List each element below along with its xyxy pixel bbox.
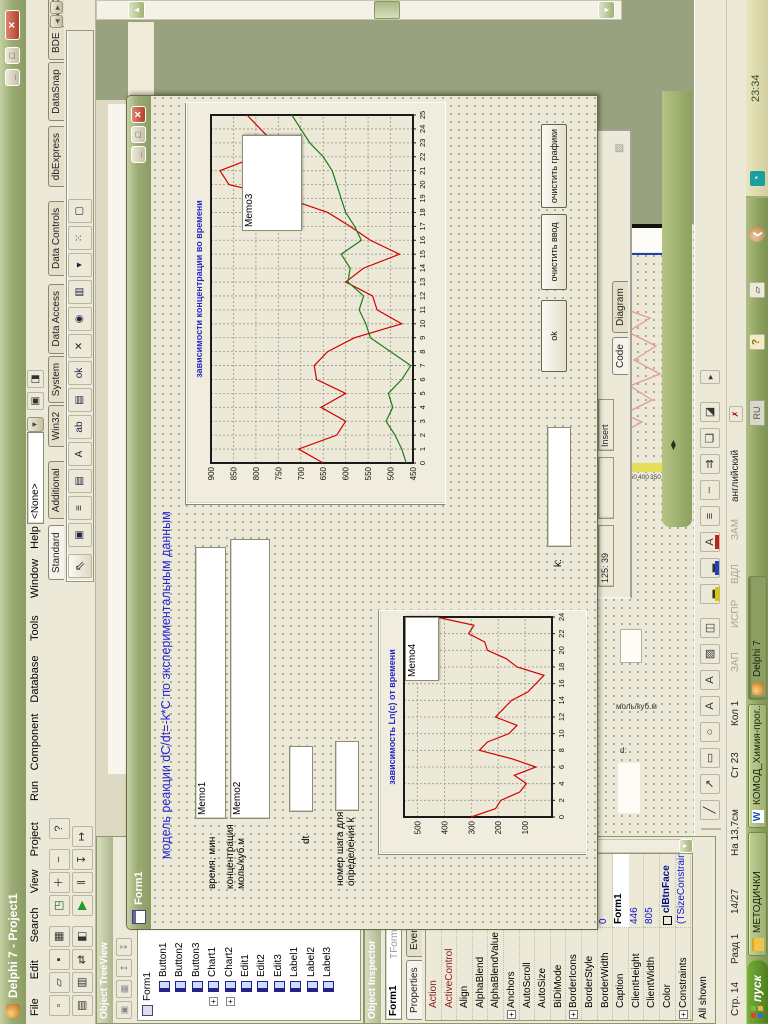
word-status-cell: Кол 1 xyxy=(730,701,741,726)
palette-tab-win32[interactable]: Win32 xyxy=(48,405,64,447)
word-status-cell: Ст 23 xyxy=(730,752,741,778)
svg-text:0: 0 xyxy=(557,815,566,819)
menu-view[interactable]: View xyxy=(29,870,41,894)
treeview-toolbar-icon[interactable]: ↧ xyxy=(116,938,132,956)
tree-item-icon xyxy=(225,981,236,992)
start-label: пуск xyxy=(746,975,768,1002)
svg-text:12: 12 xyxy=(557,713,566,721)
ok-button[interactable]: ok xyxy=(541,300,567,372)
svg-text:450: 450 xyxy=(409,466,418,480)
word-doc-white1 xyxy=(618,763,640,813)
svg-text:5: 5 xyxy=(418,391,427,395)
edit2[interactable] xyxy=(335,741,359,811)
word-status-cell: Стр. 14 xyxy=(730,982,741,1016)
word-scroll-up-icon[interactable]: ▲ xyxy=(128,1,145,19)
property-name: Caption xyxy=(615,974,626,1008)
palette-icon-strip: ⇖▣≡▤Aab▤ok✕◉▥▾⁙▢ xyxy=(66,30,94,582)
save-all-icon[interactable]: ▦ xyxy=(49,926,70,947)
property-name: AutoSize xyxy=(537,968,548,1008)
word-indicator: ВДЛ xyxy=(730,564,741,584)
groupbox-icon[interactable]: ▢ xyxy=(68,199,92,223)
property-name: Action xyxy=(428,980,439,1008)
combobox-icon[interactable]: ▾ xyxy=(68,253,92,277)
svg-text:3: 3 xyxy=(418,419,427,423)
word-scrollbar-track[interactable] xyxy=(96,0,622,20)
line-color-icon[interactable]: ▂ xyxy=(700,558,720,578)
svg-text:650: 650 xyxy=(319,466,328,480)
ide-close-icon[interactable]: ✕ xyxy=(5,10,20,40)
property-value: clBtnFace xyxy=(660,854,676,928)
property-value[interactable]: Form1 xyxy=(613,854,629,928)
editor-tab-diagram[interactable]: Diagram xyxy=(612,281,628,333)
spelling-status-icon: ✗ xyxy=(729,406,743,422)
property-row[interactable]: BorderWidth0 xyxy=(598,854,614,1020)
tray-app-icon: ◔ xyxy=(750,171,765,186)
svg-text:16: 16 xyxy=(557,679,566,687)
palette-tab-additional[interactable]: Additional xyxy=(48,461,64,519)
editor-line-col: 125: 39 xyxy=(598,525,614,587)
debug-desktop-icon[interactable]: ◨ xyxy=(27,370,44,388)
svg-text:4: 4 xyxy=(557,782,566,786)
tree-item-label1[interactable]: Label1 xyxy=(289,947,300,977)
word-doc-label-d: d: xyxy=(620,746,627,755)
taskbar-button-2[interactable]: КОМОД_Химия-прог...W xyxy=(748,704,767,828)
step-over-icon[interactable]: ↦ xyxy=(72,826,93,847)
label-icon[interactable]: A xyxy=(68,442,92,466)
menu-project[interactable]: Project xyxy=(29,822,41,856)
tree-item-label2[interactable]: Label2 xyxy=(306,947,317,977)
background-window-bar xyxy=(662,91,692,527)
word-scroll-thumb[interactable] xyxy=(374,1,400,19)
tree-expand-icon[interactable]: + xyxy=(209,997,218,1006)
editor-tab-code[interactable]: Code xyxy=(612,337,628,375)
scrollbar-icon[interactable]: ⁙ xyxy=(68,226,92,250)
property-name: ActiveControl xyxy=(444,949,455,1008)
system-tray: ◔23:34 xyxy=(746,0,768,198)
font-color-icon[interactable]: A xyxy=(700,532,720,552)
picture-icon[interactable]: ▨ xyxy=(700,644,720,664)
tree-item-icon xyxy=(307,981,318,992)
tree-item-button2[interactable]: Button2 xyxy=(174,943,185,977)
edit3[interactable] xyxy=(547,427,571,547)
tree-item-edit1[interactable]: Edit1 xyxy=(240,954,251,977)
form-minimize-icon[interactable]: _ xyxy=(131,146,146,163)
svg-text:14: 14 xyxy=(418,264,427,272)
svg-text:400: 400 xyxy=(440,820,449,834)
tree-item-button1[interactable]: Button1 xyxy=(158,943,169,977)
view-form-icon[interactable]: ▥ xyxy=(72,972,93,993)
property-name: ClientWidth xyxy=(646,957,657,1008)
word-indicator: ЗАП xyxy=(730,652,741,672)
rotated-screenshot: ▲▼d:моль/куб.м500450400350300◂▸╱↗▭○AА▨◫▂… xyxy=(0,0,768,1024)
line-icon[interactable]: ╱ xyxy=(700,800,720,820)
menu-edit[interactable]: Edit xyxy=(29,960,41,979)
tree-item-button3[interactable]: Button3 xyxy=(191,943,202,977)
taskbar-button-3[interactable]: Delphi 7 xyxy=(748,576,767,700)
popup-menu-icon[interactable]: ▤ xyxy=(68,469,92,493)
svg-text:200: 200 xyxy=(494,820,503,834)
tree-item-icon xyxy=(290,981,301,992)
svg-text:850: 850 xyxy=(229,466,238,480)
main-menu-icon[interactable]: ≡ xyxy=(68,496,92,520)
trace-into-icon[interactable]: ↧ xyxy=(72,849,93,870)
chart1: 4505005506006507007508008509000123456789… xyxy=(186,102,446,504)
resize-grip-icon: ▨ xyxy=(614,137,628,153)
word-status-bar: Стр. 14Разд 114/27На 13,7смСт 23Кол 1ЗАП… xyxy=(726,0,746,1024)
ide-top-bars: Delphi 7 - Project1_□✕FileEditSearchView… xyxy=(0,0,96,1024)
ide-menubar: FileEditSearchViewProjectRunComponentDat… xyxy=(26,0,46,1024)
property-value: 446 xyxy=(629,854,645,928)
svg-text:22: 22 xyxy=(557,629,566,637)
menu-run[interactable]: Run xyxy=(29,781,41,801)
label-k: k: xyxy=(553,559,564,567)
form1-titlebar[interactable]: Form1_□✕ xyxy=(127,96,151,929)
svg-text:8: 8 xyxy=(418,350,427,354)
edit-icon[interactable]: ab xyxy=(68,415,92,439)
color-swatch xyxy=(663,916,672,925)
property-row[interactable]: ClientHeight446 xyxy=(629,854,645,1020)
expand-icon[interactable]: + xyxy=(507,1010,516,1019)
tree-item-icon xyxy=(175,981,186,992)
chart2-memo[interactable]: Memo4 xyxy=(405,617,439,681)
property-row[interactable]: CaptionForm1 xyxy=(613,854,629,1020)
svg-text:зависимость Ln(c) от времени: зависимость Ln(c) от времени xyxy=(387,649,397,785)
editor-modified-cell xyxy=(598,457,614,519)
tree-item-chart2[interactable]: Chart2 xyxy=(224,947,235,977)
word-page-top xyxy=(108,104,126,774)
menu-database[interactable]: Database xyxy=(29,656,41,703)
palette-tab-bde[interactable]: BDE xyxy=(48,25,64,60)
property-name: Align xyxy=(459,986,470,1008)
treeview-toolbar-icon[interactable]: ▦ xyxy=(116,980,132,998)
svg-text:500: 500 xyxy=(413,820,422,834)
toolbar-grip xyxy=(701,827,721,830)
svg-text:100: 100 xyxy=(521,820,530,834)
svg-text:16: 16 xyxy=(418,236,427,244)
arrow-icon[interactable]: ↗ xyxy=(700,774,720,794)
palette-scroll-left-icon[interactable]: ◂ xyxy=(50,15,63,28)
property-row[interactable]: ColorclBtnFace xyxy=(660,854,676,1020)
svg-text:зависимости концентрации во вр: зависимости концентрации во времени xyxy=(194,200,204,378)
svg-text:700: 700 xyxy=(297,466,306,480)
component-palette: StandardAdditionalWin32SystemData Access… xyxy=(46,0,96,584)
menu-file[interactable]: File xyxy=(29,998,41,1016)
save-icon[interactable]: ▪ xyxy=(49,949,70,970)
form1-title-text: Form1 xyxy=(127,871,151,905)
svg-text:800: 800 xyxy=(252,466,261,480)
toggle-form-icon[interactable]: ⇄ xyxy=(72,949,93,970)
expand-icon[interactable]: + xyxy=(569,1010,578,1019)
language-indicator[interactable]: RU xyxy=(749,400,765,426)
form-heading: модель реакции dC/dt=-k*C по эксперимент… xyxy=(159,511,173,859)
form1-window[interactable]: Form1_□✕модель реакции dC/dt=-k*C по экс… xyxy=(126,95,598,930)
svg-text:17: 17 xyxy=(418,222,427,230)
tree-item-icon xyxy=(159,981,170,992)
palette-tab-data-controls[interactable]: Data Controls xyxy=(48,201,64,276)
label-step-number: номер шага дляопределения k xyxy=(335,806,359,886)
property-value: 0 xyxy=(598,854,614,928)
listbox-icon[interactable]: ▥ xyxy=(68,280,92,304)
palette-tab-system[interactable]: System xyxy=(48,356,64,403)
open-icon[interactable]: ▱ xyxy=(49,972,70,993)
shadow-icon[interactable]: ❏ xyxy=(700,428,720,448)
property-name: AlphaBlendValue xyxy=(490,932,501,1008)
property-name: Constraints xyxy=(678,957,689,1008)
svg-text:750: 750 xyxy=(274,466,283,480)
expand-icon[interactable]: + xyxy=(679,1010,688,1019)
treeview-toolbar-icon[interactable]: ↥ xyxy=(116,959,132,977)
save-desktop-icon[interactable]: ▣ xyxy=(27,392,44,410)
svg-text:15: 15 xyxy=(418,250,427,258)
svg-text:10: 10 xyxy=(418,320,427,328)
svg-text:8: 8 xyxy=(557,748,566,752)
radiobutton-icon[interactable]: ◉ xyxy=(68,307,92,331)
new-form-icon[interactable]: ◧ xyxy=(72,926,93,947)
svg-text:19: 19 xyxy=(418,194,427,202)
svg-text:13: 13 xyxy=(418,278,427,286)
word-page-edge xyxy=(128,22,154,100)
svg-text:300: 300 xyxy=(467,820,476,834)
arrow-style-icon[interactable]: ⇉ xyxy=(700,454,720,474)
svg-text:22: 22 xyxy=(418,153,427,161)
taskbar-button-1[interactable]: МЕТОДИЧКИ xyxy=(748,832,767,956)
ide-title-text: Delphi 7 - Project1 xyxy=(0,893,26,998)
menu-tools[interactable]: Tools xyxy=(29,615,41,641)
property-value: (TSizeConstraints) xyxy=(676,854,692,928)
property-row[interactable]: +Constraints(TSizeConstraints) xyxy=(676,854,692,1020)
property-name: ClientHeight xyxy=(631,954,642,1008)
add-file-icon[interactable]: ＋ xyxy=(49,872,70,893)
property-name: Color xyxy=(662,984,673,1008)
word-doc-label-mol: моль/куб.м xyxy=(616,702,657,711)
svg-text:7: 7 xyxy=(418,363,427,367)
svg-text:6: 6 xyxy=(557,765,566,769)
property-row[interactable]: ClientWidth805 xyxy=(644,854,660,1020)
svg-text:6: 6 xyxy=(418,377,427,381)
menu-search[interactable]: Search xyxy=(29,908,41,943)
tree-node-root[interactable]: Form1 xyxy=(142,972,153,1001)
property-name: BorderWidth xyxy=(600,952,611,1008)
svg-text:18: 18 xyxy=(418,208,427,216)
word-indicator: ИСПР xyxy=(730,600,741,628)
tree-node-icon xyxy=(142,1005,153,1016)
word-doc-white2 xyxy=(620,629,642,663)
button-icon[interactable]: ok xyxy=(68,361,92,385)
palette-tab-data-access[interactable]: Data Access xyxy=(48,284,64,354)
open-project-icon[interactable]: ◳ xyxy=(49,895,70,916)
label-concentration: концентрациямоль/куб.м xyxy=(225,815,249,889)
svg-text:4: 4 xyxy=(418,405,427,409)
svg-text:550: 550 xyxy=(364,466,373,480)
svg-text:500: 500 xyxy=(387,466,396,480)
word-language: английский xyxy=(730,450,741,502)
chart1-memo[interactable]: Memo3 xyxy=(242,135,302,231)
svg-text:20: 20 xyxy=(557,646,566,654)
svg-text:9: 9 xyxy=(418,336,427,340)
property-name: BorderStyle xyxy=(584,956,595,1008)
palette-tab-dbexpress[interactable]: dbExpress xyxy=(48,126,64,187)
tree-item-icon xyxy=(323,981,334,992)
tree-item-edit2[interactable]: Edit2 xyxy=(256,954,267,977)
rectangle-icon[interactable]: ▭ xyxy=(700,748,720,768)
desktop: ▲▼d:моль/куб.м500450400350300◂▸╱↗▭○AА▨◫▂… xyxy=(0,0,768,1024)
clear-charts-button[interactable]: очистить графики xyxy=(541,124,567,208)
svg-text:1: 1 xyxy=(418,447,427,451)
clipart-icon[interactable]: ◫ xyxy=(700,618,720,638)
svg-text:14: 14 xyxy=(557,696,566,704)
svg-text:24: 24 xyxy=(557,613,566,621)
svg-text:18: 18 xyxy=(557,663,566,671)
word-status-cell: 14/27 xyxy=(730,889,741,914)
property-name: BorderIcons xyxy=(568,954,579,1008)
edit1[interactable] xyxy=(289,746,313,812)
editor-insert-mode: Insert xyxy=(598,399,614,451)
tree-item-icon xyxy=(257,981,268,992)
delphi-icon xyxy=(752,682,764,695)
property-name: AlphaBlend xyxy=(475,957,486,1008)
property-name: AutoScroll xyxy=(522,962,533,1008)
line-style-icon[interactable]: ≡ xyxy=(700,506,720,526)
svg-text:0: 0 xyxy=(418,461,427,465)
svg-text:900: 900 xyxy=(207,466,216,480)
tray-copy-icon[interactable]: ▱ xyxy=(749,282,765,298)
fill-color-icon[interactable]: ▂ xyxy=(700,584,720,604)
menu-help[interactable]: Help xyxy=(29,526,41,549)
oval-icon[interactable]: ○ xyxy=(700,722,720,742)
form-close-icon[interactable]: ✕ xyxy=(131,106,146,123)
desktop-speed-combo[interactable]: <None> xyxy=(27,432,44,524)
palette-tab-datasnap[interactable]: DataSnap xyxy=(48,62,64,120)
palette-tab-standard[interactable]: Standard xyxy=(48,525,64,580)
svg-text:24: 24 xyxy=(418,125,427,133)
svg-text:600: 600 xyxy=(342,466,351,480)
word-status-cell: Разд 1 xyxy=(730,934,741,964)
form-maximize-icon[interactable]: □ xyxy=(131,126,146,143)
dash-style-icon[interactable]: ┄ xyxy=(700,480,720,500)
windows-logo-icon xyxy=(751,1006,763,1018)
background-window-icon: ◂▸ xyxy=(668,434,684,450)
ide-minimize-icon[interactable]: _ xyxy=(5,69,20,86)
inspector-status: All shown xyxy=(698,899,712,1019)
word-indicator: ЗАМ xyxy=(730,519,741,540)
svg-text:2: 2 xyxy=(418,433,427,437)
svg-text:25: 25 xyxy=(418,111,427,119)
checkbox-icon[interactable]: ✕ xyxy=(68,334,92,358)
property-value: 805 xyxy=(644,854,660,928)
remove-file-icon[interactable]: − xyxy=(49,849,70,870)
palette-scroll-right-icon[interactable]: ▸ xyxy=(50,1,63,14)
tray-hide-icons-icon[interactable]: ❮ xyxy=(749,226,765,242)
form-window-icon xyxy=(132,910,146,924)
tree-item-chart1[interactable]: Chart1 xyxy=(207,947,218,977)
svg-text:23: 23 xyxy=(418,139,427,147)
property-name: BiDiMode xyxy=(553,965,564,1008)
delphi-app-icon xyxy=(6,1004,20,1018)
ide-titlebar[interactable]: Delphi 7 - Project1_□✕ xyxy=(0,0,26,1024)
tree-expand-icon[interactable]: + xyxy=(226,997,235,1006)
label-dt: dt xyxy=(301,836,312,844)
label-time: время, мин xyxy=(207,837,218,889)
svg-text:21: 21 xyxy=(418,167,427,175)
clear-input-button[interactable]: очистить ввод xyxy=(541,214,567,290)
memo1[interactable]: Memo1 xyxy=(195,547,226,819)
property-name: Anchors xyxy=(506,971,517,1008)
tree-item-icon xyxy=(241,981,252,992)
svg-text:20: 20 xyxy=(418,180,427,188)
new-icon[interactable]: ▫ xyxy=(49,995,70,1016)
toolbar-overflow-icon[interactable]: ▸ xyxy=(700,370,720,384)
run-icon[interactable]: ▶ xyxy=(72,895,93,916)
cursor-icon[interactable]: ⇖ xyxy=(68,554,92,578)
ide-maximize-icon[interactable]: □ xyxy=(5,47,20,64)
tree-item-edit3[interactable]: Edit3 xyxy=(273,954,284,977)
tray-help-icon[interactable]: ? xyxy=(749,334,765,350)
svg-text:10: 10 xyxy=(557,729,566,737)
treeview-toolbar-icon[interactable]: ▣ xyxy=(116,1001,132,1019)
svg-text:11: 11 xyxy=(418,306,427,314)
memo-icon[interactable]: ▤ xyxy=(68,388,92,412)
wordart-icon[interactable]: А xyxy=(700,670,720,690)
menu-window[interactable]: Window xyxy=(29,559,41,598)
word-doc-icon: W xyxy=(752,810,764,823)
inspector-tab-properties[interactable]: Properties xyxy=(406,960,422,1020)
view-unit-icon[interactable]: ▤ xyxy=(72,995,93,1016)
svg-text:12: 12 xyxy=(418,292,427,300)
folder-icon xyxy=(752,938,764,951)
word-scroll-down-icon[interactable]: ▼ xyxy=(598,1,615,19)
textbox-icon[interactable]: A xyxy=(700,696,720,716)
help-icon[interactable]: ? xyxy=(49,818,70,839)
taskbar: пускМЕТОДИЧКИКОМОД_Химия-прог...WDelphi … xyxy=(746,0,768,1024)
tree-item-label3[interactable]: Label3 xyxy=(322,947,333,977)
svg-text:2: 2 xyxy=(557,798,566,802)
inspector-scroll-down-icon[interactable]: ▼ xyxy=(679,839,693,853)
frames-icon[interactable]: ▣ xyxy=(68,523,92,547)
start-button[interactable]: пуск xyxy=(746,960,768,1024)
form1-client[interactable]: модель реакции dC/dt=-k*C по эксперимент… xyxy=(151,97,596,926)
pause-icon[interactable]: ‖ xyxy=(72,872,93,893)
word-status-cell: На 13,7см xyxy=(730,809,741,856)
object-treeview-title: Object TreeView xyxy=(97,837,113,1023)
desktop-combo-dropdown-icon[interactable]: ▾ xyxy=(27,417,44,432)
clock: 23:34 xyxy=(750,74,762,102)
tree-item-icon xyxy=(274,981,285,992)
memo2[interactable]: Memo2 xyxy=(230,539,270,819)
menu-component[interactable]: Component xyxy=(29,714,41,771)
threed-icon[interactable]: ◪ xyxy=(700,402,720,422)
tree-item-icon xyxy=(208,981,219,992)
chart2: 100200300400500024681012141618202224зави… xyxy=(379,610,587,854)
tree-item-icon xyxy=(192,981,203,992)
